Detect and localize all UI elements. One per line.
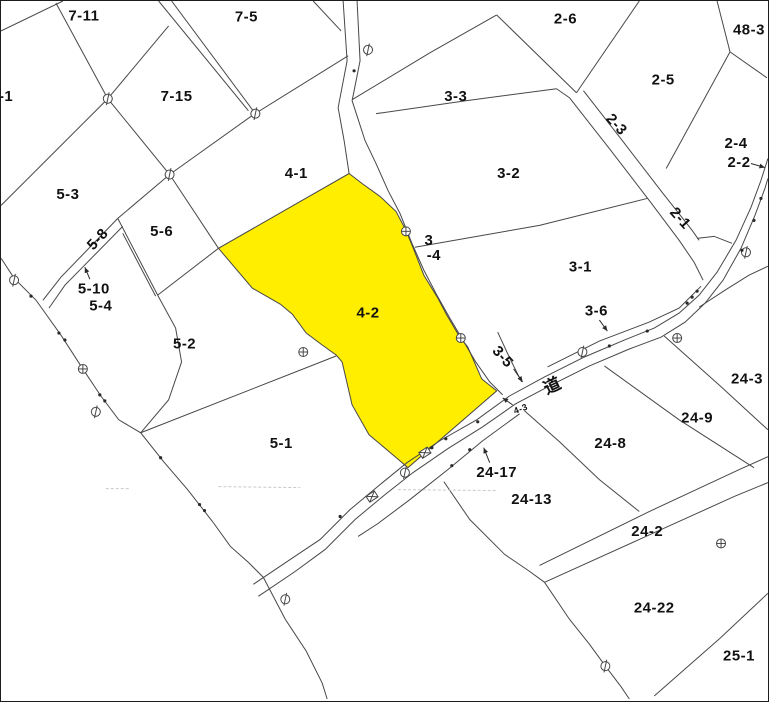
parcel-label--1: -1 [1,88,13,105]
survey-marker-circle-cross-icon [78,364,87,373]
boundary-dot [686,302,689,305]
boundary-dot [203,509,206,512]
parcel-label-24-8: 24-8 [594,435,626,452]
boundary-dot [103,399,106,402]
faded-scan-artifacts [106,487,498,491]
survey-marker-circle-line-icon [280,592,291,607]
parcel-label-5-4: 5-4 [89,298,112,315]
parcel-label-48-3: 48-3 [733,21,765,38]
boundary-dot [198,503,201,506]
survey-marker-circle-cross-icon [456,334,465,343]
parcel-label-4-1: 4-1 [285,165,308,182]
parcel-label-2-4: 2-4 [724,135,747,152]
boundary-dot [98,393,101,396]
boundary-dot [444,437,447,440]
parcel-label-7-5: 7-5 [235,8,258,25]
parcel-label-24-9: 24-9 [681,409,713,426]
boundary-dot [29,295,32,298]
parcel-label-5-1: 5-1 [270,435,293,452]
arrowhead-icon [517,376,522,382]
boundary-dot [57,331,60,334]
survey-marker-circle-cross-icon [299,348,308,357]
boundary-dot [646,329,649,332]
boundary-dot [159,456,162,459]
boundary-dot [740,249,743,252]
parcel-label-道: 道 [540,373,564,398]
survey-marker-circle-line-icon [577,345,588,360]
culvert-symbol-icon [366,491,378,502]
parcel-label-5-3: 5-3 [56,186,79,203]
parcel-label-24-17: 24-17 [476,464,517,481]
parcel-label-3-3: 3-3 [444,88,467,105]
parcel-label-2-5: 2-5 [652,71,675,88]
boundary-dot [476,420,479,423]
survey-marker-circle-line-icon [90,405,101,420]
boundary-dot [468,448,471,451]
parcel-label-3-1: 3-1 [569,259,592,276]
parcel-label-7-15: 7-15 [161,88,193,105]
parcel-label-24-2: 24-2 [631,523,663,540]
parcel-label-5-10: 5-10 [78,281,110,298]
boundary-dot [759,197,762,200]
parcel-label-5-2: 5-2 [173,336,196,353]
boundary-dot [691,296,694,299]
boundary-dot [352,69,355,72]
parcel-label-2-2: 2-2 [727,154,750,171]
faded-line [398,490,498,491]
parcel-label-3-5: 3-5 [489,343,517,372]
faded-line [218,487,300,488]
parcel-label-24-22: 24-22 [634,600,675,617]
cadastral-map: 7-117-52-648-3-17-153-32-52-34-12-42-23-… [0,0,769,702]
survey-marker-circle-line-icon [8,273,19,288]
parcel-label-4-3: 4-3 [512,402,529,416]
map-canvas: 7-117-52-648-3-17-153-32-52-34-12-42-23-… [1,1,768,701]
parcel-label--4: -4 [427,247,441,264]
survey-marker-circle-line-icon [362,43,373,58]
parcel-label-2-6: 2-6 [554,10,577,27]
parcel-label-5-6: 5-6 [150,223,173,240]
boundary-dot [430,446,433,449]
boundary-dot [752,219,755,222]
parcel-label-3-6: 3-6 [585,303,608,320]
boundary-dot [608,344,611,347]
arrowhead-icon [602,325,607,331]
parcel-label-3-2: 3-2 [497,165,520,182]
parcel-label-4-2: 4-2 [357,305,380,322]
survey-marker-circle-cross-icon [717,539,726,548]
parcel-label-25-1: 25-1 [723,648,755,665]
boundary-dot [339,515,342,518]
boundary-dot [63,338,66,341]
boundary-dot [450,464,453,467]
parcel-label-24-13: 24-13 [511,491,552,508]
survey-marker-circle-cross-icon [401,227,410,236]
parcel-label-24-3: 24-3 [731,370,763,387]
boundary-dot [696,290,699,293]
parcel-label-2-3: 2-3 [602,110,630,139]
parcel-label-7-11: 7-11 [68,7,99,24]
survey-marker-circle-cross-icon [673,334,682,343]
